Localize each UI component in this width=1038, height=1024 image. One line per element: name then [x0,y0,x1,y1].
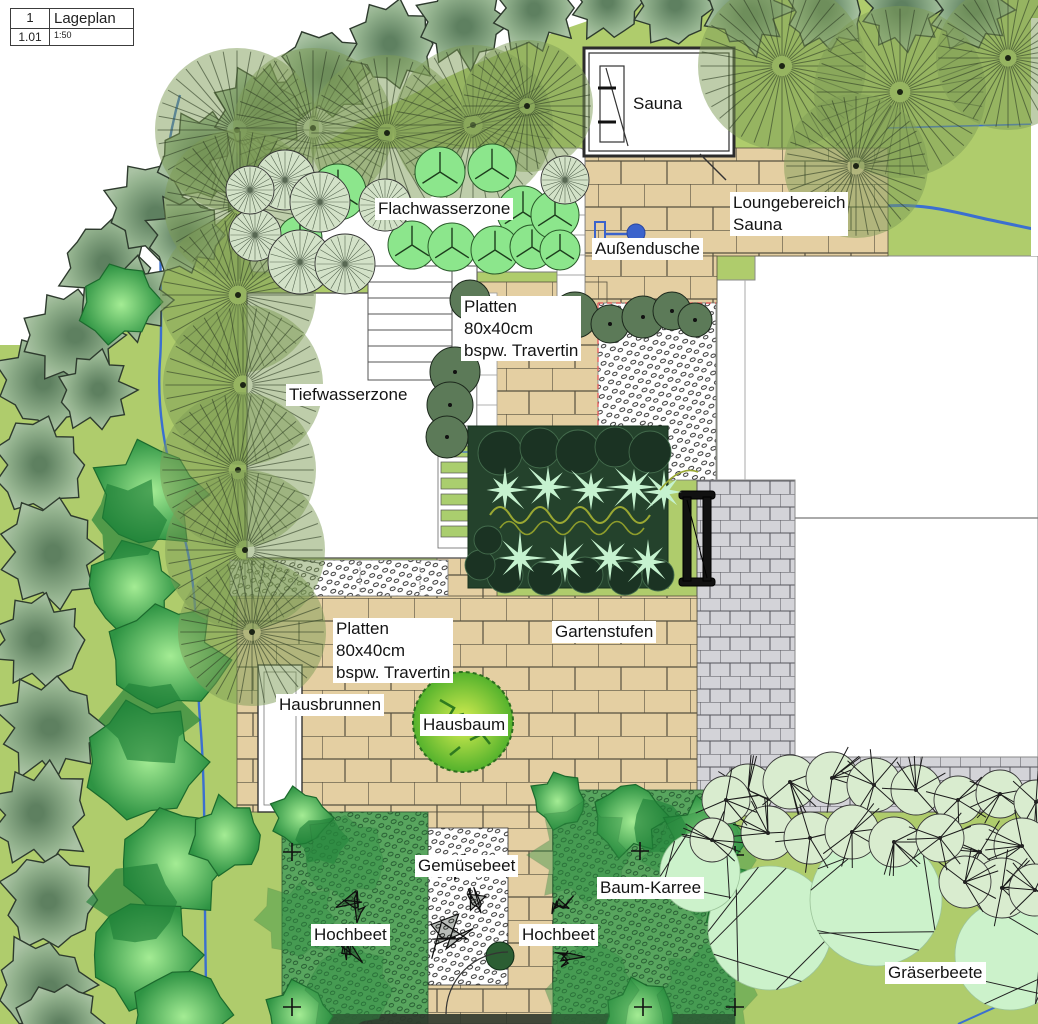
label-hochbeet-rechts: Hochbeet [519,924,598,946]
label-aussendusche: Außendusche [592,238,703,260]
plan-number: 1 [11,9,50,28]
plan-canvas [0,0,1038,1024]
label-hochbeet-links: Hochbeet [311,924,390,946]
site-plan: 1 Lageplan 1.01 1:50 Flachwasserzone Sau… [0,0,1038,1024]
plan-scale: 1:50 [50,29,133,45]
label-flachwasserzone: Flachwasserzone [375,198,513,220]
label-sauna: Sauna [630,93,685,115]
label-baum-karree: Baum-Karree [597,877,704,899]
label-hausbrunnen: Hausbrunnen [276,694,384,716]
label-tiefwasserzone: Tiefwasserzone [286,384,410,406]
label-platten-oben: Platten 80x40cm bspw. Travertin [461,296,581,361]
plan-title: Lageplan [50,9,133,28]
label-platten-terrasse: Platten 80x40cm bspw. Travertin [333,618,453,683]
title-block: 1 Lageplan 1.01 1:50 [10,8,134,46]
label-graeserbeete: Gräserbeete [885,962,986,984]
label-loungebereich-sauna: Loungebereich Sauna [730,192,848,236]
label-hausbaum: Hausbaum [420,714,508,736]
label-gemuesebeet: Gemüsebeet [415,855,518,877]
plan-sheet: 1.01 [11,29,50,45]
label-gartenstufen: Gartenstufen [552,621,656,643]
